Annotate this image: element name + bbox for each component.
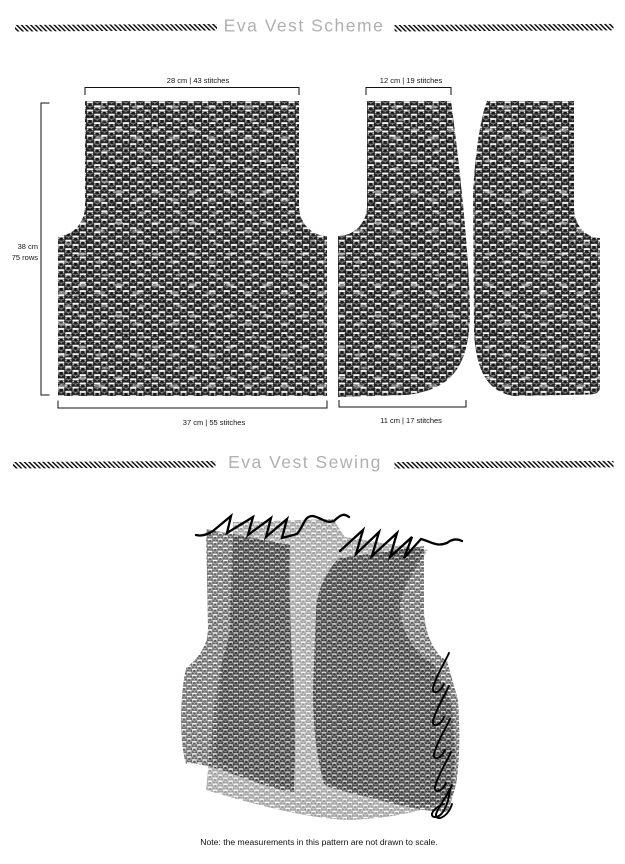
svg-text:Eva Vest Sewing: Eva Vest Sewing xyxy=(228,452,382,472)
svg-text:28 cm | 43 stitches: 28 cm | 43 stitches xyxy=(167,76,230,85)
svg-text:37 cm | 55 stitches: 37 cm | 55 stitches xyxy=(183,418,246,427)
svg-text:Eva Vest Scheme: Eva Vest Scheme xyxy=(224,16,385,36)
svg-text:75 rows: 75 rows xyxy=(12,253,39,262)
svg-text:38 cm: 38 cm xyxy=(18,242,38,251)
svg-text:12 cm | 19 stitches: 12 cm | 19 stitches xyxy=(380,76,443,85)
svg-text:11 cm | 17 stitches: 11 cm | 17 stitches xyxy=(380,416,442,425)
svg-text:Note: the measurements in this: Note: the measurements in this pattern a… xyxy=(200,837,437,847)
